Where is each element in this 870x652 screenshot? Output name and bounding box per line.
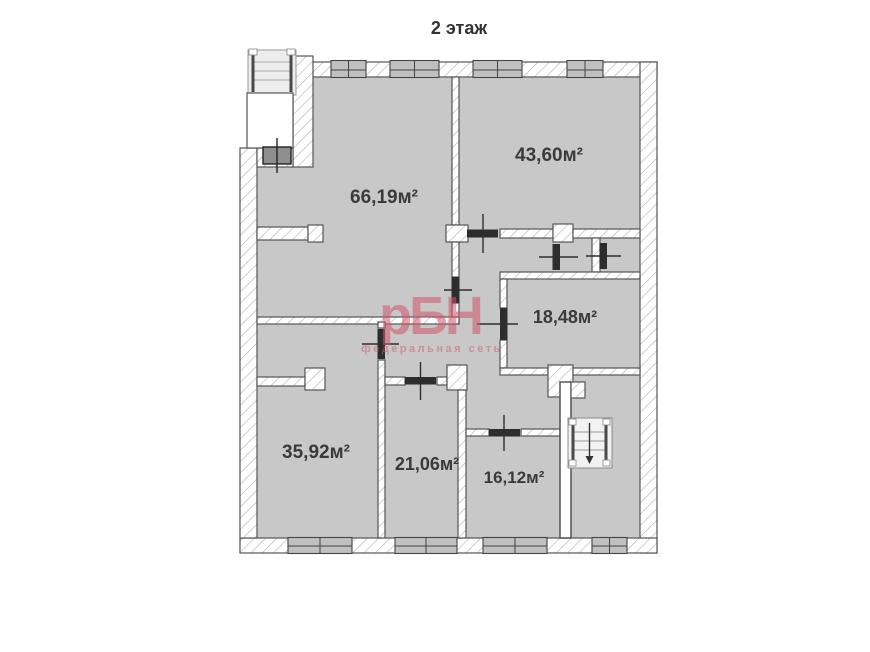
partition-center-mid [452,242,459,277]
wall-1612-top-right [521,429,560,436]
pillar-nook [308,225,323,242]
window [331,61,366,78]
wall-2106-top-left [385,377,405,385]
interior-staircase [568,418,612,468]
stair-rail [252,53,255,92]
wall-1848-left-upper [500,279,507,308]
window [483,538,547,554]
pillar-3592-entry [305,368,325,390]
wall-below-4360-right [573,229,640,238]
stair-pad [569,460,576,466]
window [390,61,439,78]
wall-1848-top [500,272,640,279]
wall-1848-bottom-left [500,368,548,375]
pillar-center [446,225,468,242]
stair-pad [287,49,295,55]
window [395,538,457,554]
room-area-label: 21,06м² [395,454,459,474]
stair-pad [603,419,610,425]
wall-left [240,148,257,538]
watermark-brand: рБН [379,286,481,346]
room-area-label: 35,92м² [282,442,350,463]
wall-2106-top-right [437,377,447,385]
watermark-subtitle: федеральная сеть [361,343,503,355]
wall-below-4360-left [500,229,553,238]
window [592,538,627,554]
wall-1612-top-left [466,429,489,436]
stair-rail [290,53,293,92]
wall-3592-top [257,377,305,386]
stair-pad [569,419,576,425]
wall-2106-1612 [458,390,466,538]
window [473,61,522,78]
wall-nook [257,227,308,240]
stair-box [248,50,296,95]
vestibule-room [247,93,293,148]
stair-rail [605,423,608,463]
floor-plan-page: 2 этаж [0,0,870,652]
floor-title: 2 этаж [431,18,488,38]
room-area-label: 16,12м² [484,468,545,487]
partition-center-vertical [452,77,459,225]
wall-3592-2106 [378,360,385,538]
pillar-stairs [571,382,585,398]
wall-closet-divider [592,238,600,272]
window [288,538,352,554]
room-area-label: 66,19м² [350,187,418,208]
exterior-staircase [248,49,296,95]
stair-pad [249,49,257,55]
pillar-below-4360 [553,224,573,242]
wall-right [640,62,657,553]
stair-rail [572,423,575,463]
pillar-2106 [447,365,467,390]
window [567,61,603,78]
room-area-label: 18,48м² [533,307,597,327]
floor-plan: 2 этаж [0,0,870,652]
stair-pad [603,460,610,466]
room-area-label: 43,60м² [515,145,583,166]
wall-1848-bottom-right [573,368,640,375]
